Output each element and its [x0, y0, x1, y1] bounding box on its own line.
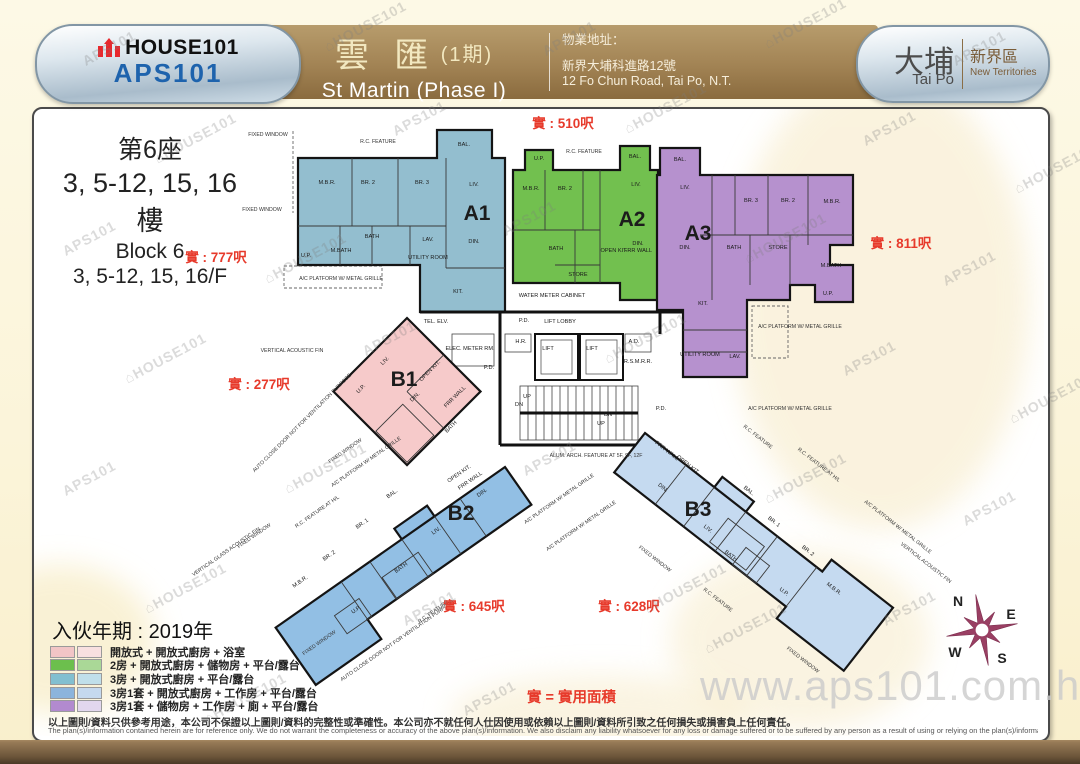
estate-title-en: St Martin (Phase I)	[286, 79, 542, 103]
legend-swatch	[77, 687, 102, 699]
disclaimer-en: The plan(s)/information contained herein…	[48, 726, 1038, 735]
address-label: 物業地址：	[562, 33, 731, 49]
legend-swatch	[77, 659, 102, 671]
legend-swatch	[50, 646, 75, 658]
address-cn: 新界大埔科進路12號	[562, 59, 731, 75]
legend-swatch	[50, 659, 75, 671]
brand-aps101: APS101	[37, 60, 299, 87]
brand-logo[interactable]: HOUSE101 APS101	[35, 24, 301, 104]
district-badge[interactable]: 大埔 Tai Po 新界區 New Territories	[856, 25, 1050, 103]
estate-title-phase: (1期)	[441, 38, 493, 67]
address-en: 12 Fo Chun Road, Tai Po, N.T.	[562, 74, 731, 90]
brand-house101: HOUSE101	[37, 36, 299, 60]
move-in-year: 入伙年期 : 2019年	[52, 615, 213, 644]
block-title: 第6座 3, 5-12, 15, 16樓 Block 6 3, 5-12, 15…	[50, 130, 250, 289]
area-note: 實 = 實用面積	[527, 686, 616, 707]
block-title-en: Block 6	[50, 240, 250, 264]
region-cn: 新界區	[970, 43, 1018, 67]
district-divider	[962, 39, 963, 89]
block-title-cn: 第6座	[50, 130, 250, 166]
legend-row: 3房1套 + 儲物房 + 工作房 + 廁 + 平台/露台	[50, 699, 318, 713]
legend-swatch	[77, 646, 102, 658]
unit-type-legend: 開放式 + 開放式廚房 + 浴室2房 + 開放式廚房 + 儲物房 + 平台/露台…	[50, 645, 318, 713]
header-divider	[549, 33, 550, 91]
district-en: Tai Po	[874, 71, 954, 88]
legend-swatch	[77, 700, 102, 712]
estate-title-block: 雲 匯 (1期) St Martin (Phase I)	[286, 28, 542, 98]
estate-title-cn: 雲 匯	[335, 28, 436, 77]
legend-swatch	[50, 673, 75, 685]
block-floors-en: 3, 5-12, 15, 16/F	[50, 265, 250, 289]
region-en: New Territories	[970, 67, 1037, 78]
address-block: 物業地址： 新界大埔科進路12號 12 Fo Chun Road, Tai Po…	[562, 33, 731, 90]
legend-swatch	[77, 673, 102, 685]
house101-logo-icon	[97, 38, 121, 58]
block-floors-cn: 3, 5-12, 15, 16樓	[50, 168, 250, 238]
legend-label: 3房1套 + 儲物房 + 工作房 + 廁 + 平台/露台	[110, 698, 318, 714]
legend-swatch	[50, 700, 75, 712]
footer-bar	[0, 740, 1080, 764]
legend-swatch	[50, 687, 75, 699]
